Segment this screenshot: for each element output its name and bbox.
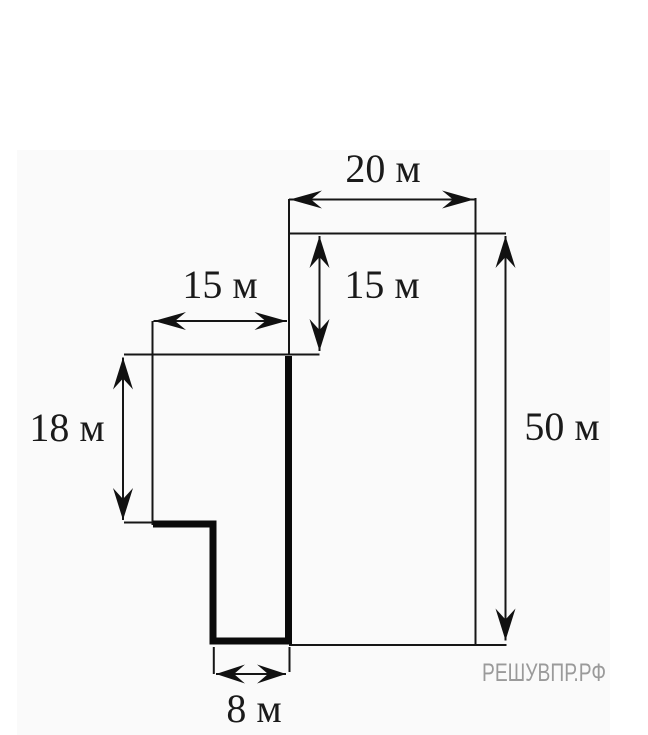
svg-text:15 м: 15 м	[182, 262, 257, 307]
svg-text:20 м: 20 м	[345, 146, 420, 191]
svg-text:8 м: 8 м	[226, 686, 281, 731]
svg-text:15 м: 15 м	[344, 262, 419, 307]
svg-text:РЕШУВПР.РФ: РЕШУВПР.РФ	[482, 659, 606, 687]
svg-text:50 м: 50 м	[524, 404, 599, 449]
svg-text:18 м: 18 м	[29, 405, 104, 450]
